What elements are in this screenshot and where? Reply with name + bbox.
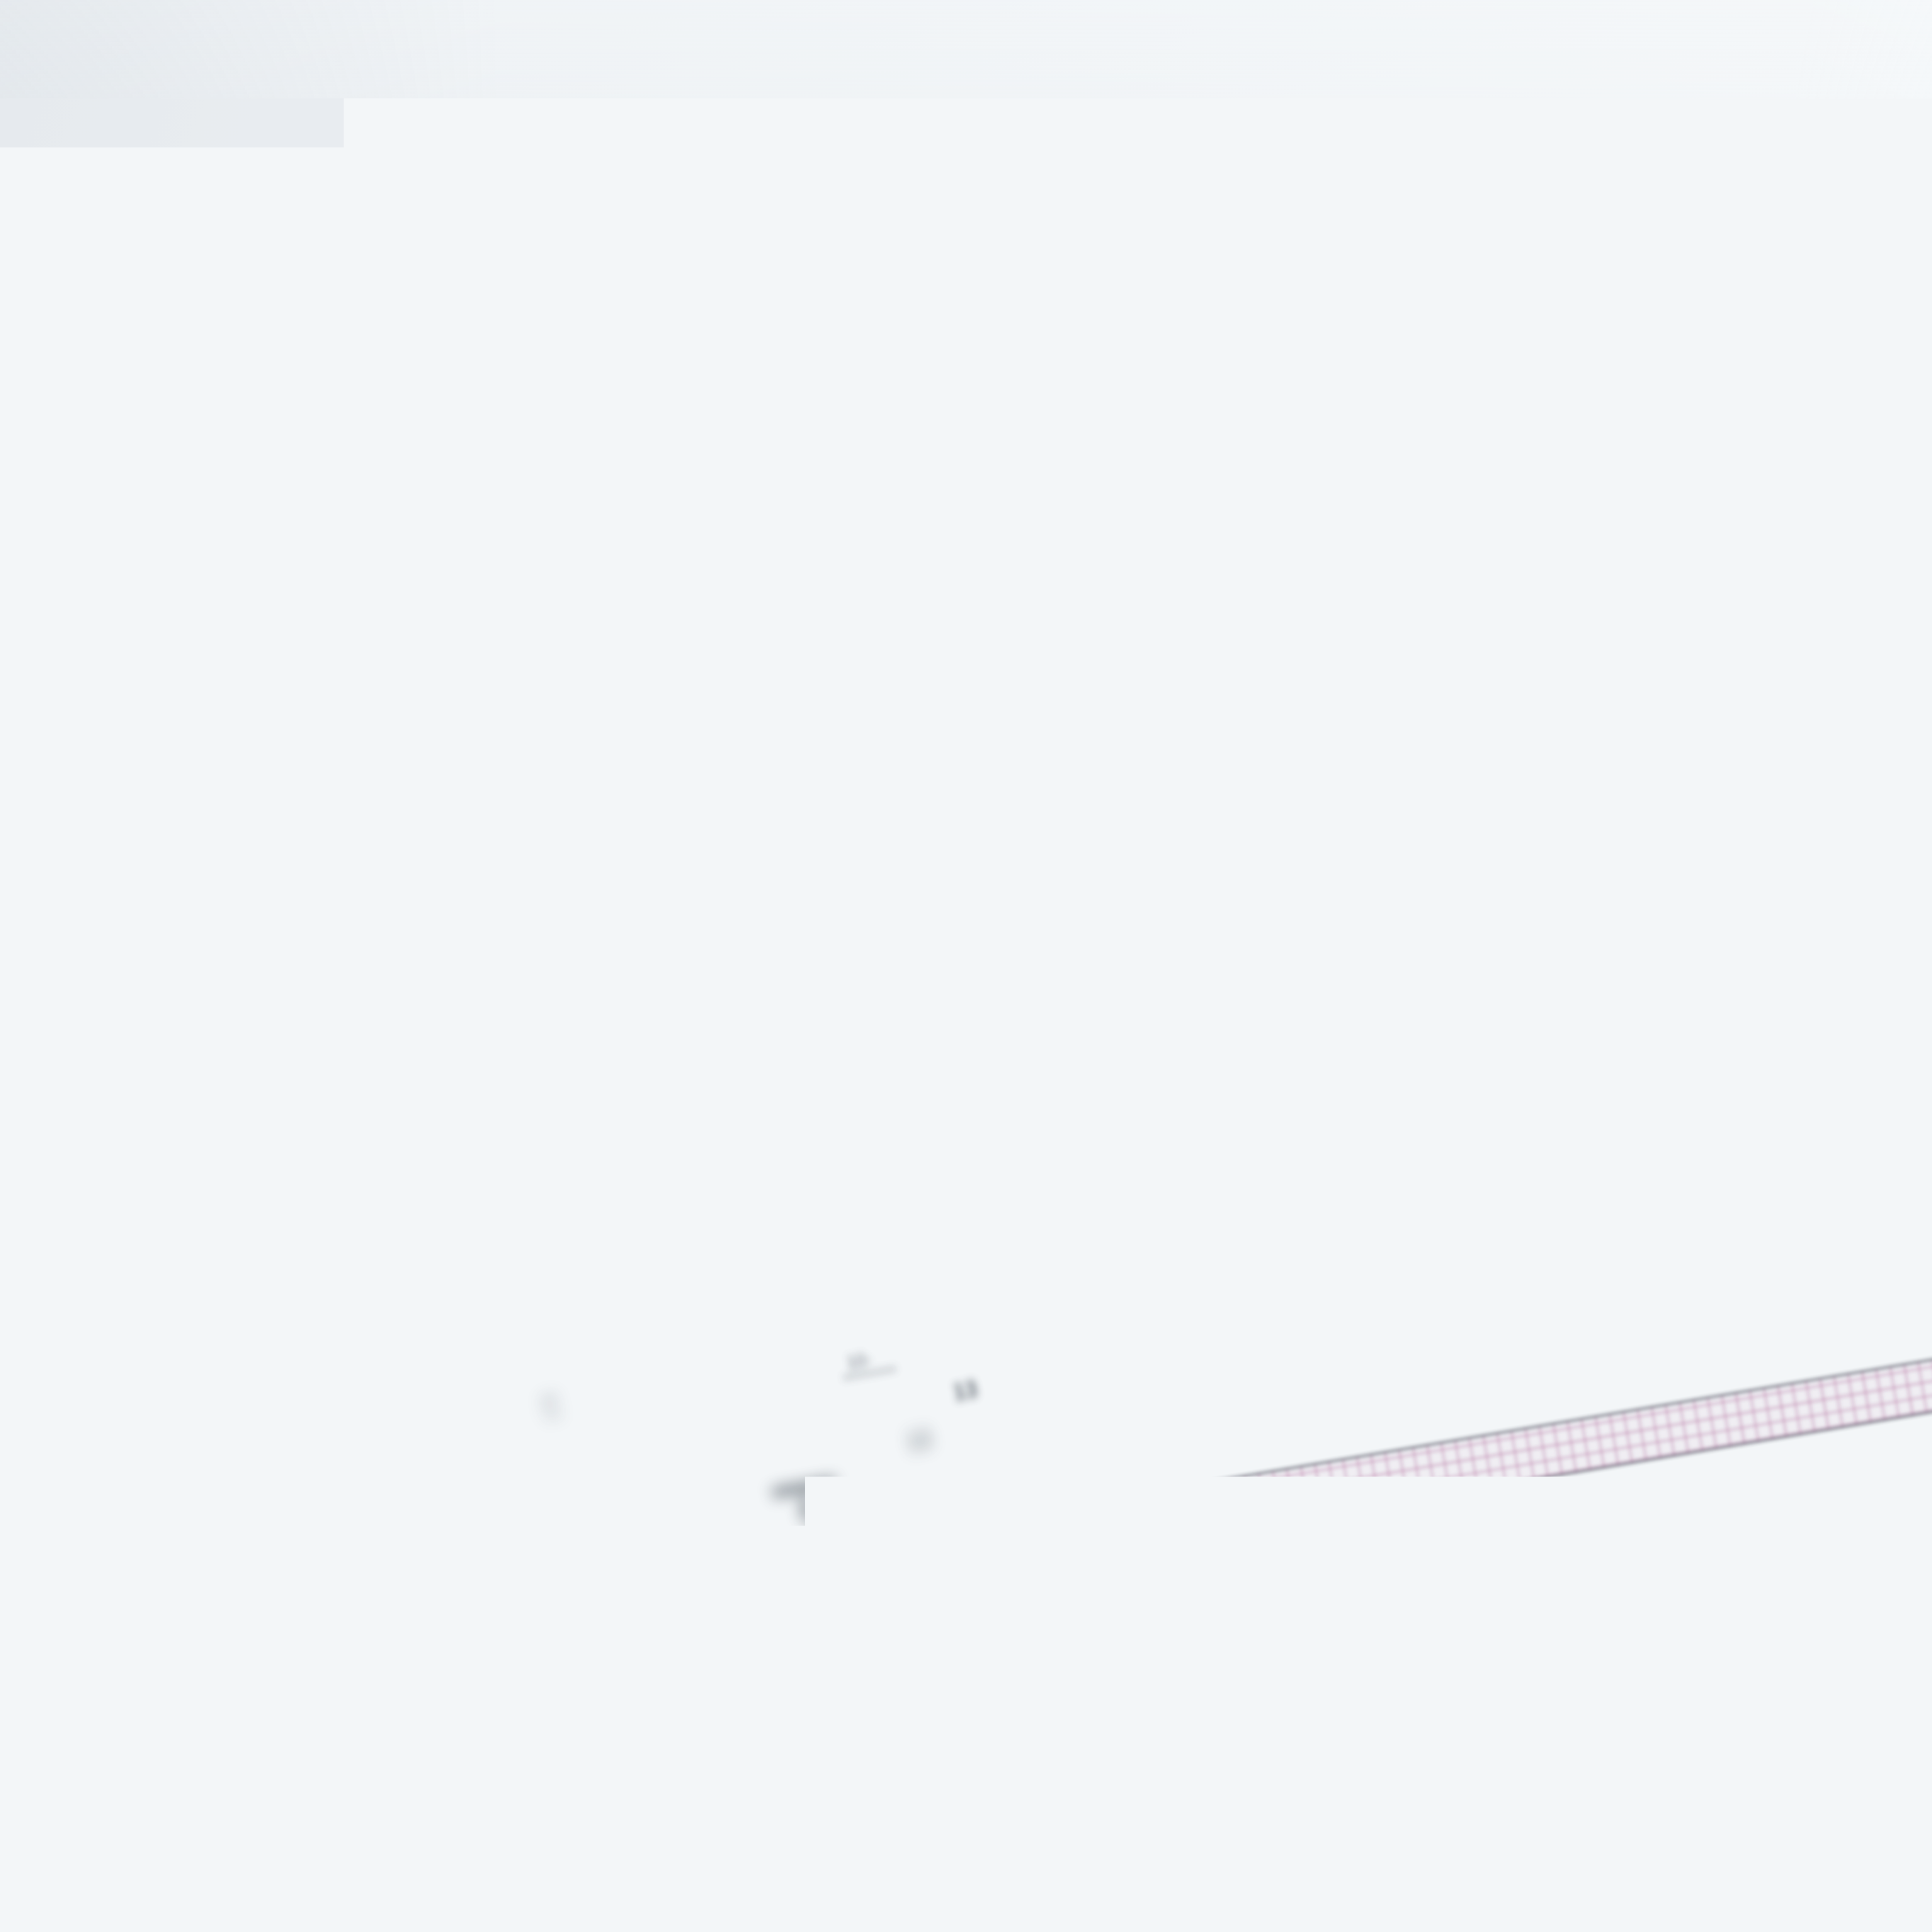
dimension-text: 300x24=7200 <box>1421 315 1536 359</box>
position-number: 8 <box>1671 670 1691 704</box>
dimension-text: 230 <box>1214 518 1239 549</box>
dimension-text: 300x8=2400 <box>622 1211 657 1307</box>
position-number: 7 <box>1575 838 1595 872</box>
foundation-plan: 10-10-10-10-6410-10-10-6410-4410-4410-64… <box>0 0 1932 1861</box>
dimension-text: 175 <box>473 1210 497 1241</box>
rebar-count: 10-44 <box>1019 803 1143 847</box>
dimension-text: 425 <box>407 950 431 981</box>
dimension-line <box>1509 1036 1616 1055</box>
position-number: 13 <box>376 1159 409 1194</box>
dimension-line <box>455 925 792 984</box>
dimension-text: 2400 <box>665 1215 691 1255</box>
rebar-symbol <box>1555 1619 1639 1713</box>
dimension-text: стена фундамента <box>1549 182 1691 226</box>
dimension-line <box>1928 71 1932 1815</box>
rebar-spacing-label: 10- <box>1750 709 1824 745</box>
rebar-symbol <box>768 1472 852 1566</box>
rebar-symbol <box>1112 1029 1205 1134</box>
position-number: 13 <box>951 1375 980 1406</box>
rebar-spacing-label: 10-64 <box>645 927 721 964</box>
dimension-text: 300x15=4500 <box>495 604 535 719</box>
blueprint-photo: 10-10-10-10-6410-10-10-6410-4410-4410-64… <box>0 0 1932 1861</box>
rebar-symbol <box>1496 1120 1600 1213</box>
dimension-text: 600 <box>1113 551 1138 583</box>
rebar-symbol <box>655 202 739 297</box>
rebar-symbol <box>1398 1423 1492 1507</box>
position-number: 17 <box>1245 1204 1275 1236</box>
rebar-symbol <box>629 717 745 820</box>
foundation-wall-band <box>799 428 1169 1708</box>
dimension-text: 300 <box>787 886 812 917</box>
dimension-text: 300x8=2400 <box>1275 1029 1380 1068</box>
dimension-text: 175 <box>309 1000 333 1031</box>
position-number: 13 <box>905 1425 934 1455</box>
tick-mark <box>619 1084 633 1103</box>
dimension-text: 200 <box>1054 546 1076 575</box>
tick-mark <box>815 760 828 779</box>
dimension-text: 425 <box>597 1167 622 1198</box>
position-number: 7 <box>172 935 192 969</box>
tick-mark <box>1261 746 1275 765</box>
tick-mark <box>758 1059 772 1078</box>
position-number: 7 <box>614 789 634 823</box>
foundation-wall-band <box>1131 1343 1932 1547</box>
dimension-text: 240 <box>457 864 481 896</box>
dimension-text: 300 <box>802 945 826 976</box>
tick-mark <box>1131 374 1145 393</box>
tick-mark <box>1923 170 1932 188</box>
tick-mark <box>1005 618 1019 636</box>
position-number: 17 <box>766 1024 799 1059</box>
rebar-symbol <box>1592 776 1694 891</box>
rebar-spacing-label: 10- <box>1149 643 1303 694</box>
rebar-spacing-label: 10-64 <box>268 885 328 920</box>
dimension-text: 50 <box>839 920 862 942</box>
dimension-text: 200 <box>1555 1006 1586 1030</box>
axis-bubble <box>567 183 621 237</box>
foundation-wall-band <box>1077 1580 1228 1932</box>
tick-mark <box>797 920 811 939</box>
dimension-text: 300x23=6900 <box>1279 673 1320 788</box>
rebar-symbol <box>798 325 891 430</box>
dimension-text: 170 <box>541 1391 565 1423</box>
rebar-count: 10- <box>1549 551 1606 583</box>
rebar-symbol <box>894 1267 978 1362</box>
dimension-text: 300x22=6600 <box>1859 883 1900 998</box>
dimension-line <box>1777 747 1885 838</box>
rebar-spacing-label: 10-44 <box>1081 428 1114 484</box>
rebar-count: 10- <box>839 1347 896 1379</box>
tick-mark <box>500 890 514 909</box>
position-number: 10 <box>655 691 690 728</box>
dimension-text: 50 <box>361 1041 383 1063</box>
rebar-symbol <box>504 831 616 957</box>
rebar-spacing-label: 10- <box>839 1347 897 1381</box>
rebar-spacing-label: 10-64 <box>1514 1275 1573 1310</box>
tick-mark <box>835 778 848 797</box>
rebar-symbol <box>397 1084 490 1189</box>
rebar-symbol <box>1104 144 1197 248</box>
axis-bubble <box>255 1643 304 1692</box>
rebar-spacing-label: 10- <box>1549 551 1607 585</box>
dimension-line <box>534 320 818 376</box>
dimension-line <box>1243 459 1420 1018</box>
rebar-spacing-label: 10- <box>1613 1471 1654 1502</box>
rebar-symbol <box>1607 549 1722 651</box>
rebar-symbol <box>710 607 812 723</box>
dimension-line <box>303 1584 712 1657</box>
rebar-spacing-label: 10- <box>754 567 844 607</box>
dimension-text: 180 <box>711 1135 736 1166</box>
dimension-text: 50 <box>995 549 1015 569</box>
dimension-line <box>107 1623 747 1746</box>
dimension-text: 50 <box>501 1150 524 1172</box>
dimension-text: 245 <box>1069 637 1093 668</box>
rebar-count: 10- <box>1149 643 1303 692</box>
tick-mark <box>449 988 462 1007</box>
rebar-spacing-label: 10-44 <box>1019 803 1143 849</box>
tick-mark <box>1231 725 1245 743</box>
tick-mark <box>1023 634 1037 653</box>
tick-mark <box>701 1070 714 1088</box>
